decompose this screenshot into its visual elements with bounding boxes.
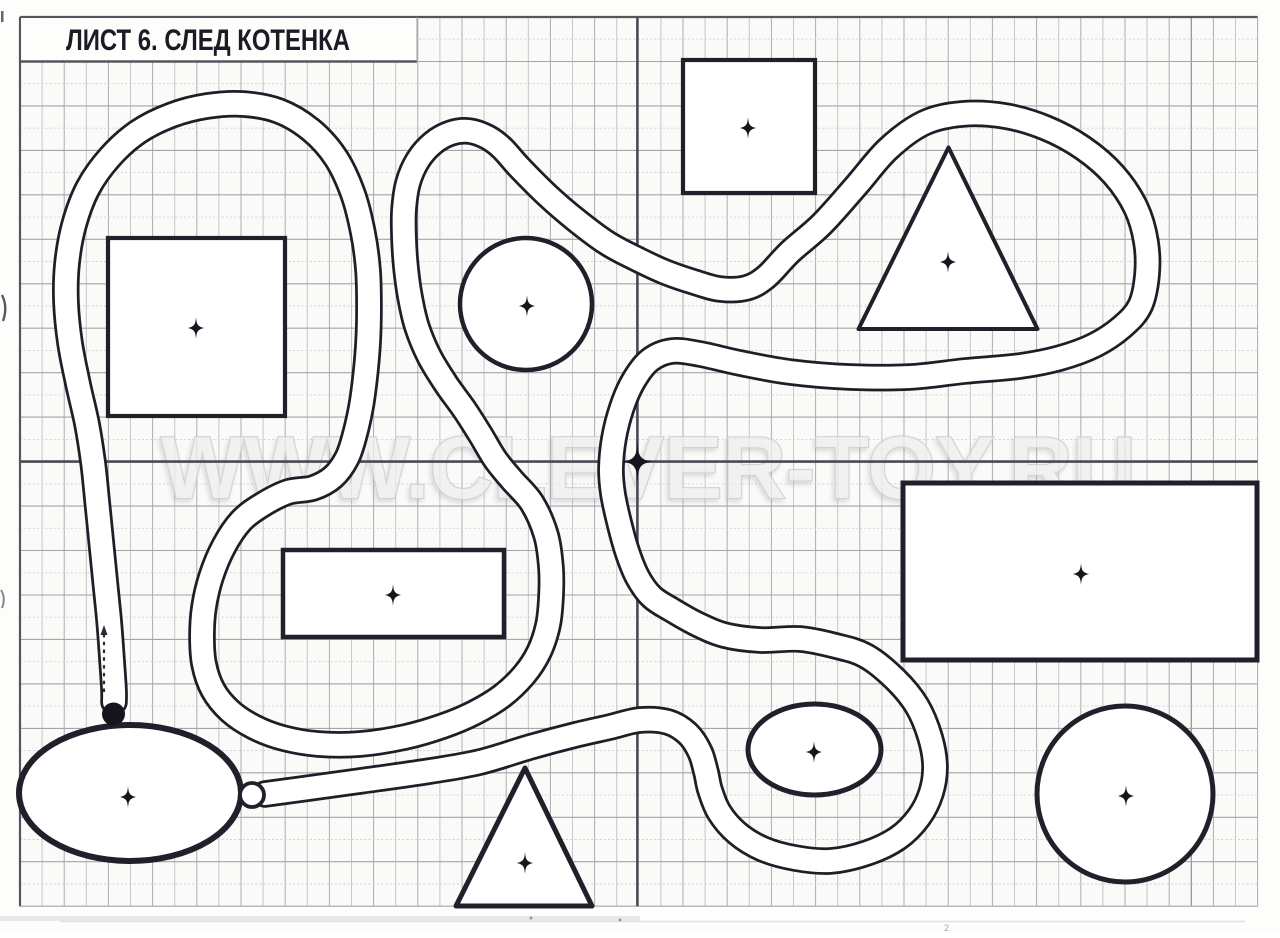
svg-text:ЛИСТ 6. СЛЕД КОТЕНКА: ЛИСТ 6. СЛЕД КОТЕНКА bbox=[66, 24, 350, 57]
svg-text:2: 2 bbox=[944, 923, 949, 933]
